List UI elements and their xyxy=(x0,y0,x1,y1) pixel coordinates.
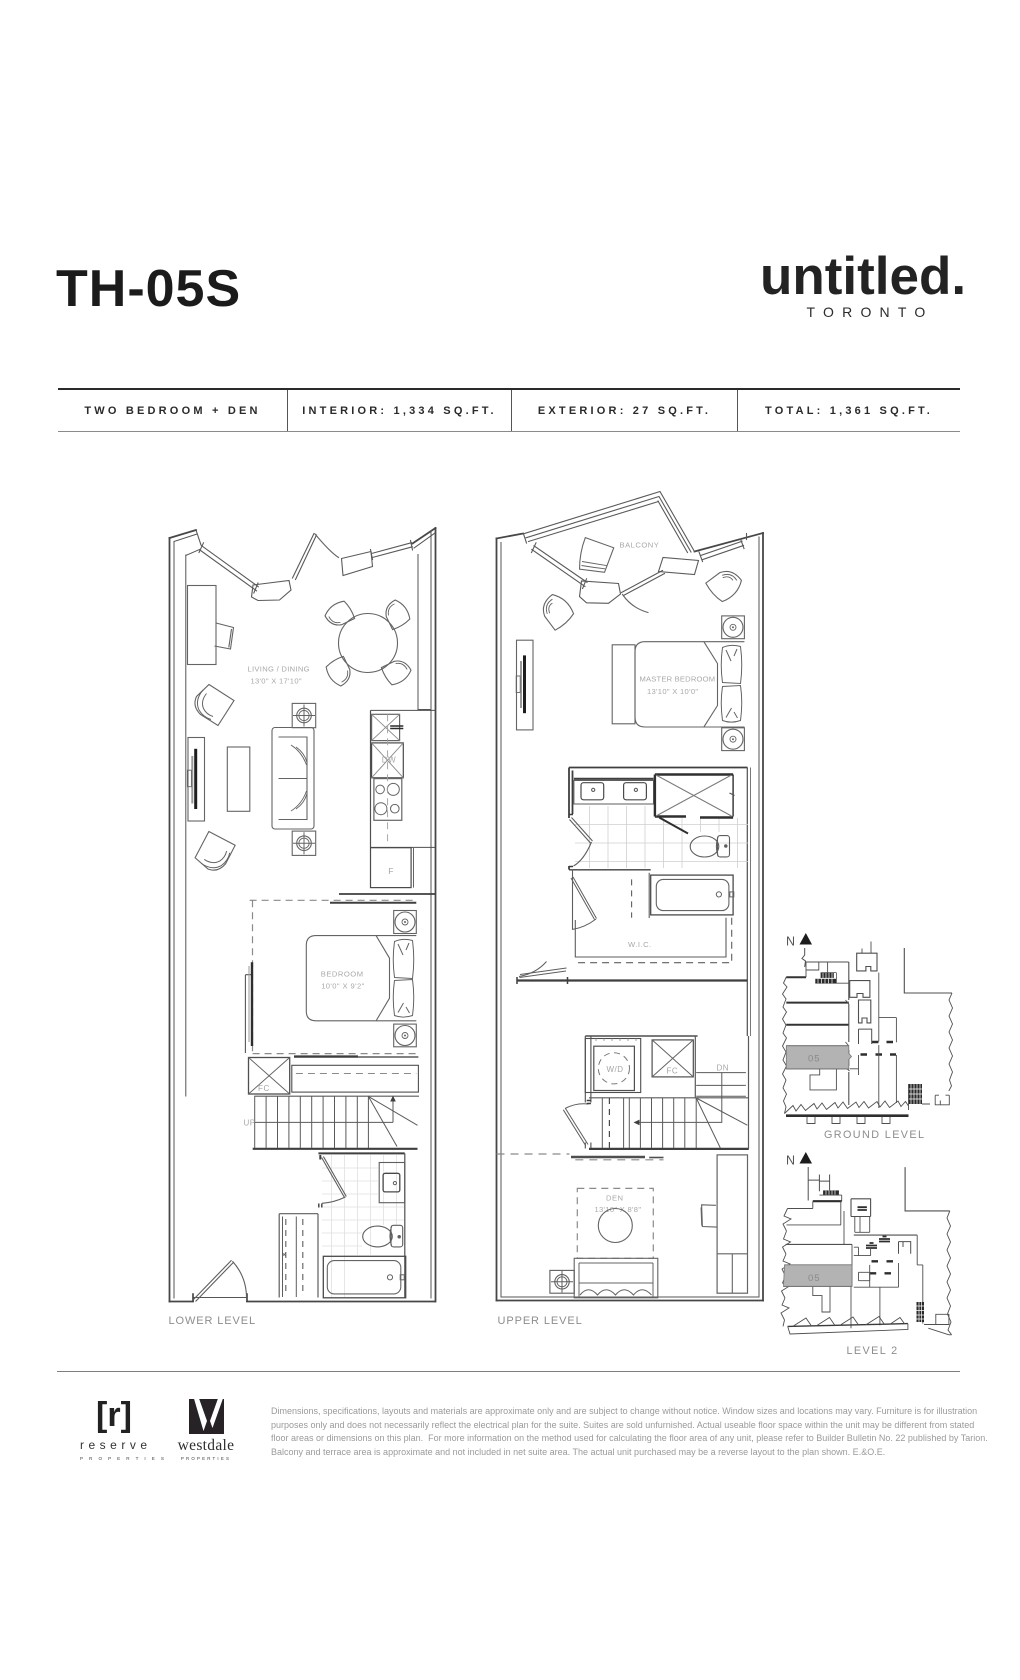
svg-text:BEDROOM: BEDROOM xyxy=(321,970,364,979)
svg-text:FC: FC xyxy=(258,1084,270,1093)
svg-text:05: 05 xyxy=(808,1273,821,1284)
svg-text:13'10" X 8'8": 13'10" X 8'8" xyxy=(595,1205,642,1214)
svg-text:13'0" X 17'10": 13'0" X 17'10" xyxy=(251,677,302,686)
svg-text:FC: FC xyxy=(667,1067,679,1076)
svg-text:DN: DN xyxy=(717,1064,730,1073)
svg-text:N: N xyxy=(786,1154,795,1168)
svg-text:BALCONY: BALCONY xyxy=(620,541,660,550)
svg-text:F: F xyxy=(388,866,393,876)
svg-text:05: 05 xyxy=(808,1054,821,1065)
svg-text:DEN: DEN xyxy=(606,1194,624,1203)
svg-text:MASTER BEDROOM: MASTER BEDROOM xyxy=(640,675,716,684)
svg-text:10'0" X 9'2": 10'0" X 9'2" xyxy=(321,982,365,991)
svg-text:W/D: W/D xyxy=(607,1065,624,1074)
svg-text:N: N xyxy=(786,935,795,949)
svg-text:13'10" X 10'0": 13'10" X 10'0" xyxy=(647,687,698,696)
svg-text:W.I.C.: W.I.C. xyxy=(628,940,652,949)
svg-text:UP: UP xyxy=(244,1118,256,1127)
svg-text:LIVING / DINING: LIVING / DINING xyxy=(248,665,310,674)
svg-text:DW: DW xyxy=(382,756,397,765)
